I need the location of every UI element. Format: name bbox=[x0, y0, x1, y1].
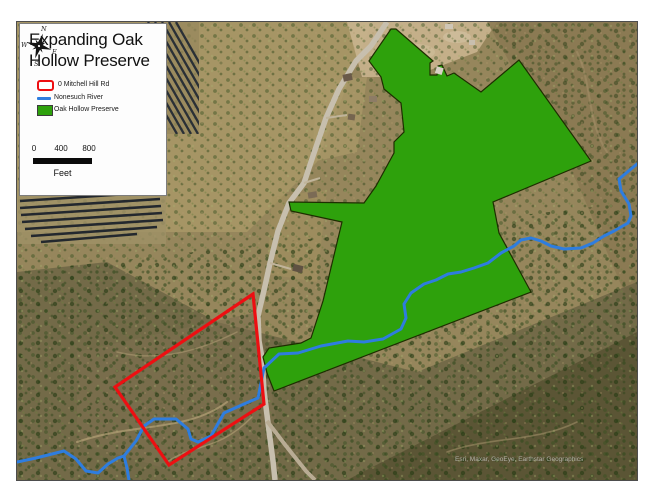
map-frame: Esri, Maxar, GeoEye, Earthstar Geographi… bbox=[16, 21, 638, 481]
scale-bar bbox=[33, 158, 92, 164]
river-swatch bbox=[37, 97, 51, 100]
preserve-swatch bbox=[37, 105, 53, 116]
scale-tick: 400 bbox=[54, 144, 67, 153]
compass-n-label: N bbox=[40, 25, 47, 33]
parcel-swatch bbox=[37, 80, 54, 91]
compass-s-label: S bbox=[34, 60, 39, 68]
legend-item-label: 0 Mitchell Hill Rd bbox=[58, 81, 168, 89]
scale-tick: 0 bbox=[32, 144, 36, 153]
compass-e-label: E bbox=[51, 48, 57, 56]
compass-rose-icon: N E S W bbox=[20, 24, 60, 68]
scale-unit-label: Feet bbox=[33, 168, 92, 178]
legend-item-label: Oak Hollow Preserve bbox=[54, 106, 164, 114]
compass-w-label: W bbox=[21, 41, 29, 49]
map-page: Esri, Maxar, GeoEye, Earthstar Geographi… bbox=[0, 0, 650, 502]
legend-item-label: Nonesuch River bbox=[54, 94, 164, 102]
attribution-text: Esri, Maxar, GeoEye, Earthstar Geographi… bbox=[455, 456, 635, 463]
scale-tick: 800 bbox=[82, 144, 95, 153]
legend-panel: Expanding Oak Hollow Preserve 0 Mitchell… bbox=[19, 23, 167, 196]
